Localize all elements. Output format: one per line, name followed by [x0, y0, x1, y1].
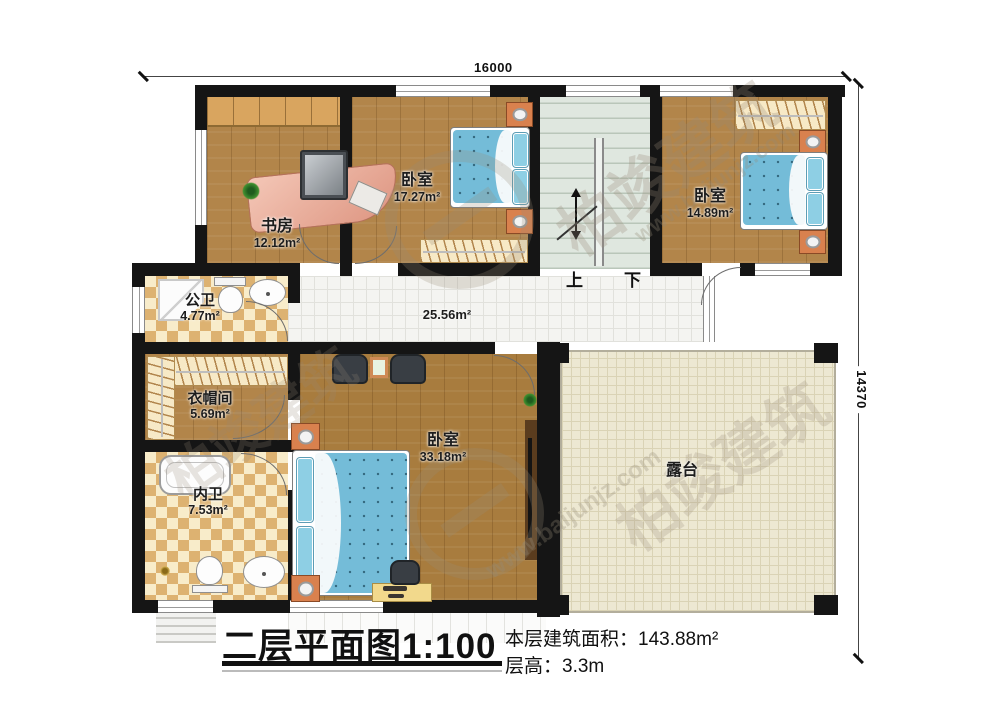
master-label: 卧室33.18m² [398, 432, 488, 465]
hallway-floor [288, 276, 712, 342]
private-sink [243, 556, 285, 588]
dimension-width-label: 16000 [470, 60, 517, 75]
study-cabinet [207, 97, 340, 127]
master-armchair-right [390, 354, 426, 384]
hallway-label: 25.56m² [402, 308, 492, 323]
bedroom1-label: 卧室17.27m² [372, 172, 462, 205]
public-bath-window [132, 287, 145, 333]
exterior-steps [156, 613, 216, 643]
stair-down-label: 下 [624, 266, 641, 291]
stairwell-window-right [660, 85, 733, 97]
floor-plan: 上 下 书房12.12m² 卧室17.27m² 卧室14.89m² 公卫4.77… [0, 0, 1000, 706]
floor-area-label: 本层建筑面积：143.88m² [505, 624, 718, 651]
public-toilet-tank [214, 277, 246, 286]
dimension-line-top [143, 76, 847, 77]
bedroom1-top-window [396, 85, 490, 97]
closet-wardrobe-top [173, 356, 288, 386]
dimension-height-label: 14370 [854, 366, 869, 413]
floor-height-label: 层高：3.3m [505, 651, 604, 678]
private-bath-label: 内卫7.53m² [163, 486, 253, 518]
master-desk-chair [390, 560, 420, 585]
master-nightstand-bottom [291, 575, 320, 602]
terrace-floor [560, 350, 836, 613]
bedroom1-nightstand-bottom [506, 209, 533, 234]
bedroom2-door [701, 267, 741, 305]
bedroom1-bed [450, 127, 530, 208]
study-plant-icon [242, 182, 260, 200]
stair-up-label: 上 [566, 266, 583, 291]
private-toilet [196, 556, 223, 585]
master-plant-icon [523, 393, 537, 407]
computer-monitor-icon [300, 150, 348, 200]
terrace-post-nw [545, 343, 569, 363]
terrace-post-se [814, 595, 838, 615]
public-bath-label: 公卫4.77m² [155, 292, 245, 324]
bedroom2-bottom-window [755, 263, 810, 276]
bath-lamp-icon [160, 566, 170, 576]
closet-label: 衣帽间5.69m² [165, 390, 255, 422]
study-left-window [195, 130, 207, 225]
master-nightstand-top [291, 423, 320, 450]
bedroom2-wardrobe [735, 100, 826, 130]
terrace-post-sw [545, 595, 569, 615]
private-toilet-base [192, 585, 228, 593]
master-side-table [370, 357, 388, 378]
bedroom1-nightstand-top [506, 102, 533, 127]
study-label: 书房12.12m² [232, 218, 322, 251]
bedroom2-label: 卧室14.89m² [665, 188, 755, 221]
stairwell-window-left [566, 85, 640, 97]
private-bath-bottom-window [158, 600, 213, 613]
bedroom2-nightstand-top [799, 130, 826, 154]
stair-rail [594, 138, 604, 266]
bedroom1-wardrobe [420, 239, 528, 263]
terrace-post-ne [814, 343, 838, 363]
stair-direction-arrow [575, 196, 577, 232]
terrace-label: 露台 [637, 462, 727, 480]
bedroom2-nightstand-bottom [799, 230, 826, 254]
tv-icon [528, 438, 532, 538]
master-armchair-left [332, 354, 368, 384]
